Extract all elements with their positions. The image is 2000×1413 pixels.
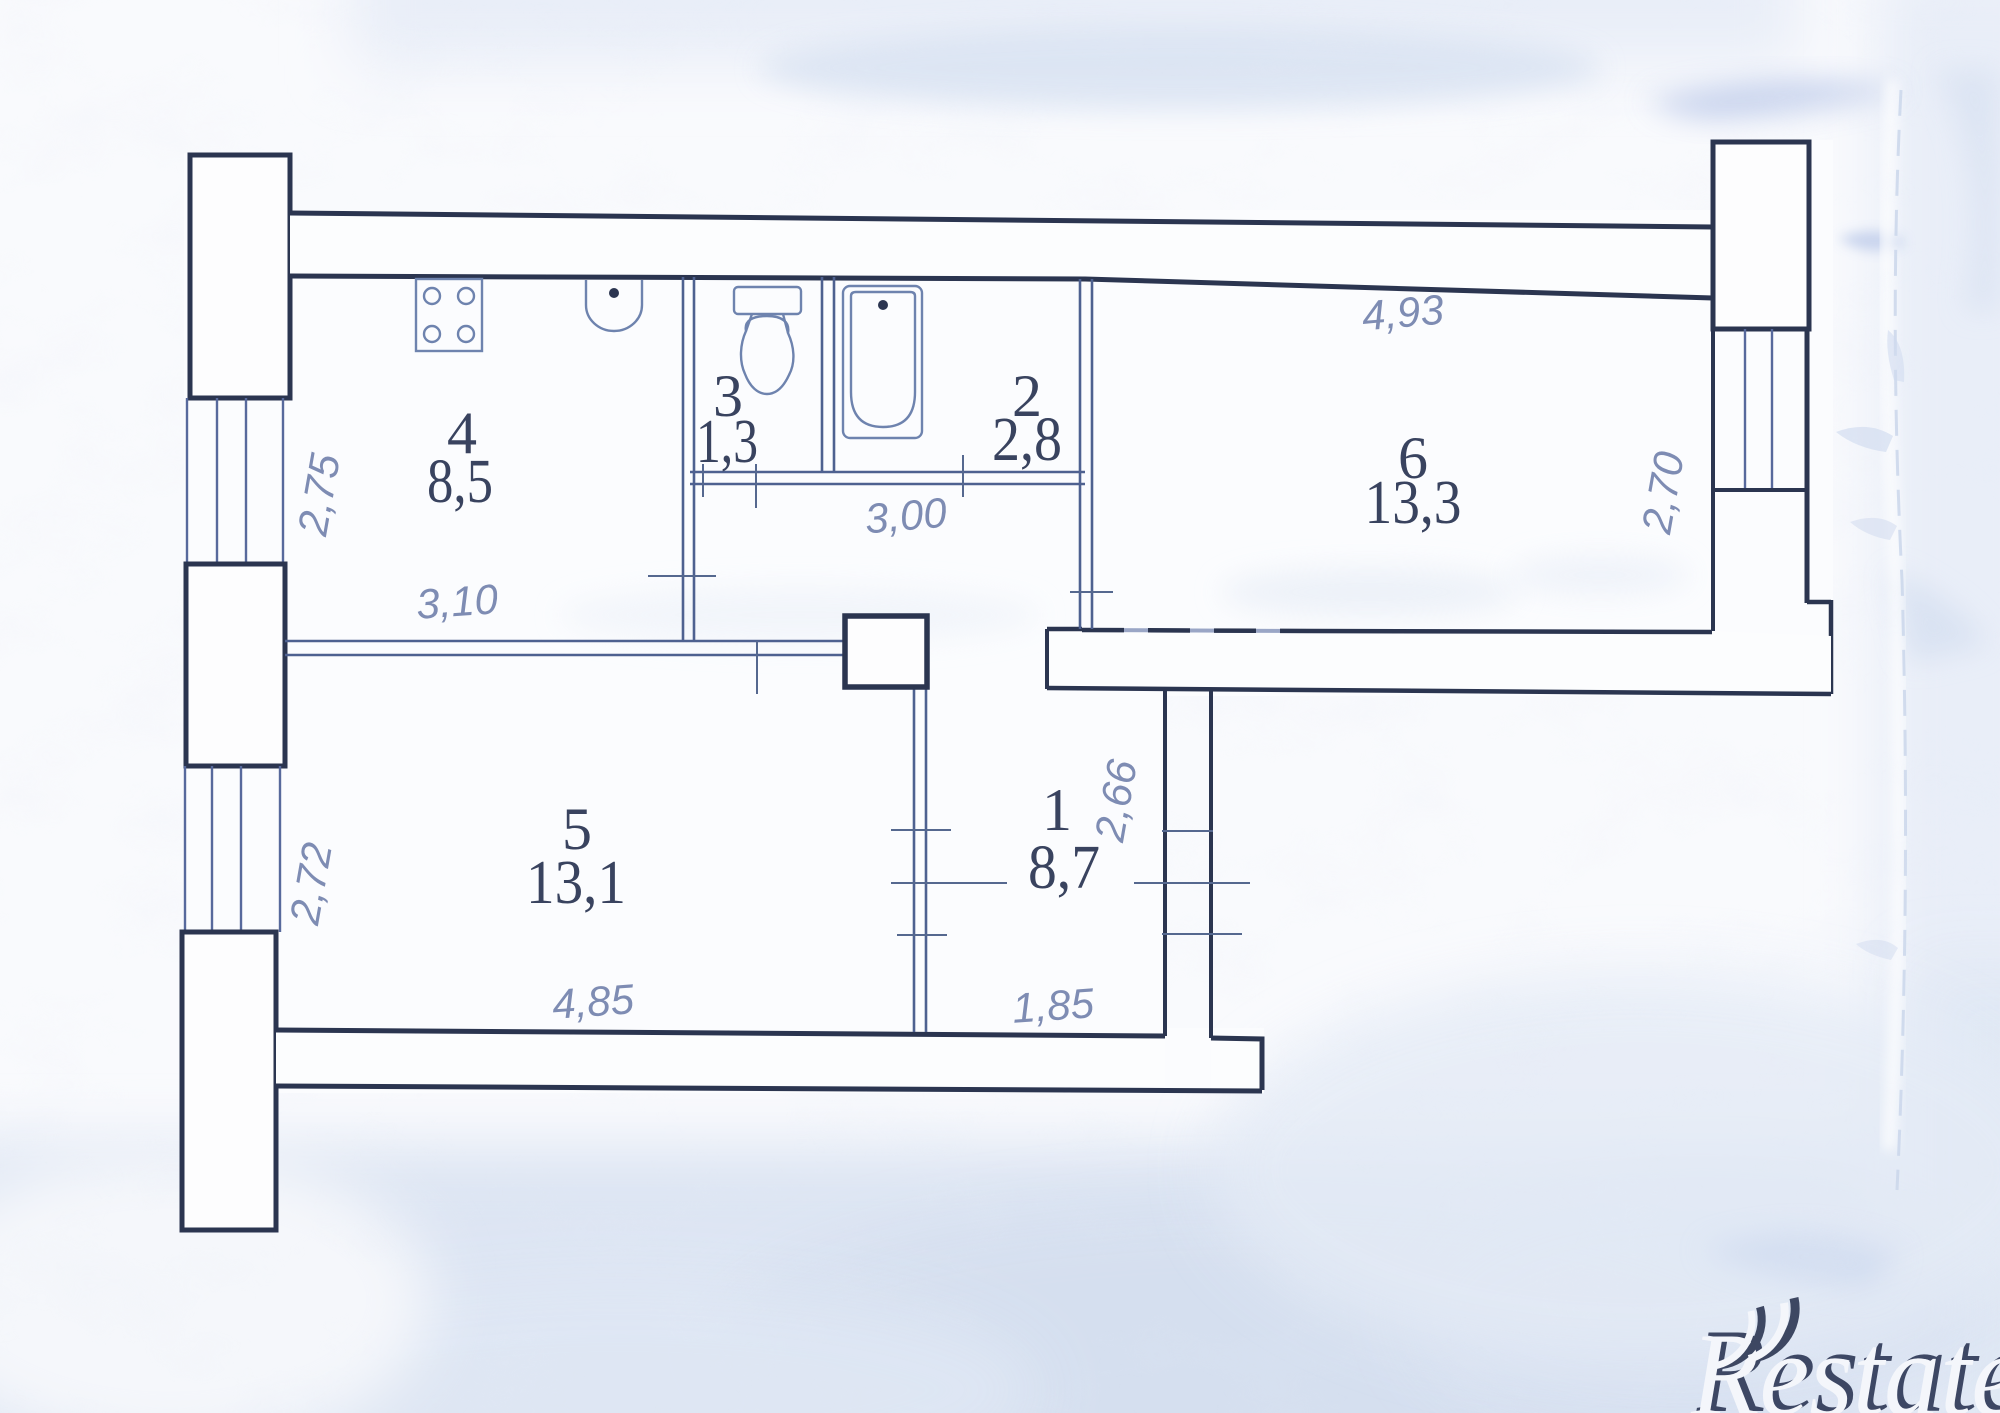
svg-text:13,3: 13,3	[1365, 469, 1462, 537]
svg-text:13,1: 13,1	[526, 849, 626, 917]
svg-text:4,93: 4,93	[1360, 286, 1446, 340]
svg-text:4,85: 4,85	[551, 975, 636, 1028]
svg-text:1,85: 1,85	[1011, 979, 1096, 1032]
svg-text:1,3: 1,3	[696, 408, 758, 476]
svg-text:8,5: 8,5	[427, 448, 493, 516]
svg-text:3,10: 3,10	[415, 575, 500, 628]
svg-text:2,8: 2,8	[992, 406, 1062, 474]
svg-text:8,7: 8,7	[1028, 834, 1100, 902]
svg-text:3,00: 3,00	[863, 489, 949, 543]
